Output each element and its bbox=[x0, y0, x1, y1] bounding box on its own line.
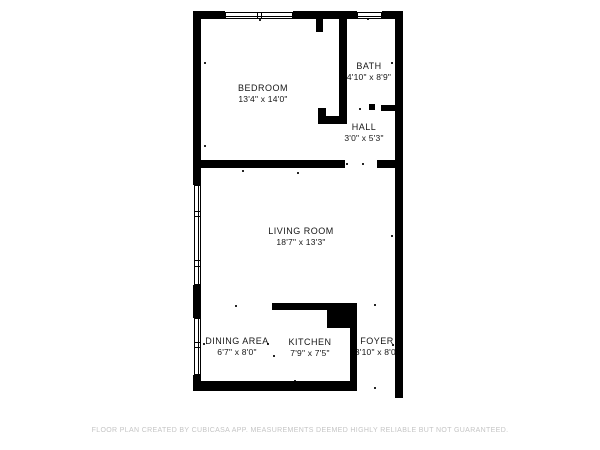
room-label-bath: BATH 4'10" x 8'9" bbox=[347, 61, 391, 83]
window-mullion bbox=[195, 211, 200, 212]
window-symbol bbox=[225, 12, 293, 19]
wall-segment bbox=[377, 160, 403, 168]
window-mullion bbox=[257, 13, 258, 18]
wall-segment bbox=[350, 328, 357, 381]
window-mullion bbox=[195, 260, 200, 261]
tick-mark bbox=[391, 62, 393, 64]
wall-segment bbox=[193, 160, 345, 168]
room-dimensions: 3'0" x 5'3" bbox=[344, 133, 383, 144]
wall-segment bbox=[193, 381, 357, 391]
tick-mark bbox=[355, 344, 357, 346]
wall-segment bbox=[316, 19, 323, 32]
window-mullion bbox=[195, 342, 200, 343]
wall-segment bbox=[395, 11, 403, 398]
window-symbol bbox=[194, 185, 201, 285]
room-dimensions: 4'10" x 8'9" bbox=[347, 72, 391, 83]
tick-mark bbox=[259, 19, 261, 21]
room-name: KITCHEN bbox=[288, 337, 331, 348]
room-dimensions: 6'7" x 8'0" bbox=[205, 347, 269, 358]
wall-segment bbox=[193, 285, 201, 318]
window-mullion bbox=[261, 13, 262, 18]
disclaimer-text: FLOOR PLAN CREATED BY CUBICASA APP. MEAS… bbox=[0, 427, 600, 434]
tick-mark bbox=[204, 145, 206, 147]
tick-mark bbox=[297, 304, 299, 306]
window-mullion bbox=[195, 347, 200, 348]
room-name: DINING AREA bbox=[205, 336, 269, 347]
room-name: BEDROOM bbox=[238, 83, 288, 94]
wall-segment bbox=[327, 303, 357, 328]
room-name: BATH bbox=[347, 61, 391, 72]
tick-mark bbox=[235, 305, 237, 307]
wall-segment bbox=[369, 104, 375, 110]
room-name: HALL bbox=[344, 122, 383, 133]
room-dimensions: 3'10" x 8'0" bbox=[355, 347, 399, 358]
room-name: LIVING ROOM bbox=[268, 226, 334, 237]
tick-mark bbox=[367, 18, 369, 20]
tick-mark bbox=[267, 343, 269, 345]
wall-segment bbox=[339, 19, 347, 124]
tick-mark bbox=[392, 344, 394, 346]
wall-segment bbox=[318, 108, 326, 118]
tick-mark bbox=[204, 62, 206, 64]
window-mullion bbox=[195, 216, 200, 217]
room-label-bedroom: BEDROOM 13'4" x 14'0" bbox=[238, 83, 288, 105]
room-label-living-room: LIVING ROOM 18'7" x 13'3" bbox=[268, 226, 334, 248]
window-symbol bbox=[194, 318, 201, 375]
room-label-hall: HALL 3'0" x 5'3" bbox=[344, 122, 383, 144]
room-label-dining-area: DINING AREA 6'7" x 8'0" bbox=[205, 336, 269, 358]
room-label-kitchen: KITCHEN 7'9" x 7'5" bbox=[288, 337, 331, 359]
wall-segment bbox=[381, 105, 395, 111]
tick-mark bbox=[346, 163, 348, 165]
tick-mark bbox=[237, 383, 239, 385]
window-symbol bbox=[357, 12, 382, 19]
wall-segment bbox=[293, 11, 357, 19]
tick-mark bbox=[391, 235, 393, 237]
window-glass-line bbox=[226, 16, 292, 17]
tick-mark bbox=[203, 343, 205, 345]
wall-segment bbox=[193, 11, 201, 185]
room-dimensions: 18'7" x 13'3" bbox=[268, 237, 334, 248]
tick-mark bbox=[362, 163, 364, 165]
room-dimensions: 13'4" x 14'0" bbox=[238, 94, 288, 105]
tick-mark bbox=[374, 387, 376, 389]
window-glass-line bbox=[358, 16, 381, 17]
floorplan-canvas: BEDROOM 13'4" x 14'0" BATH 4'10" x 8'9" … bbox=[0, 0, 600, 450]
tick-mark bbox=[297, 172, 299, 174]
wall-segment bbox=[272, 303, 327, 310]
tick-mark bbox=[374, 304, 376, 306]
tick-mark bbox=[359, 108, 361, 110]
room-label-foyer: FOYER 3'10" x 8'0" bbox=[355, 336, 399, 358]
window-glass-line bbox=[198, 186, 199, 284]
tick-mark bbox=[273, 355, 275, 357]
floorplan-page: BEDROOM 13'4" x 14'0" BATH 4'10" x 8'9" … bbox=[0, 0, 600, 450]
tick-mark bbox=[294, 380, 296, 382]
tick-mark bbox=[242, 170, 244, 172]
window-mullion bbox=[195, 266, 200, 267]
room-dimensions: 7'9" x 7'5" bbox=[288, 348, 331, 359]
